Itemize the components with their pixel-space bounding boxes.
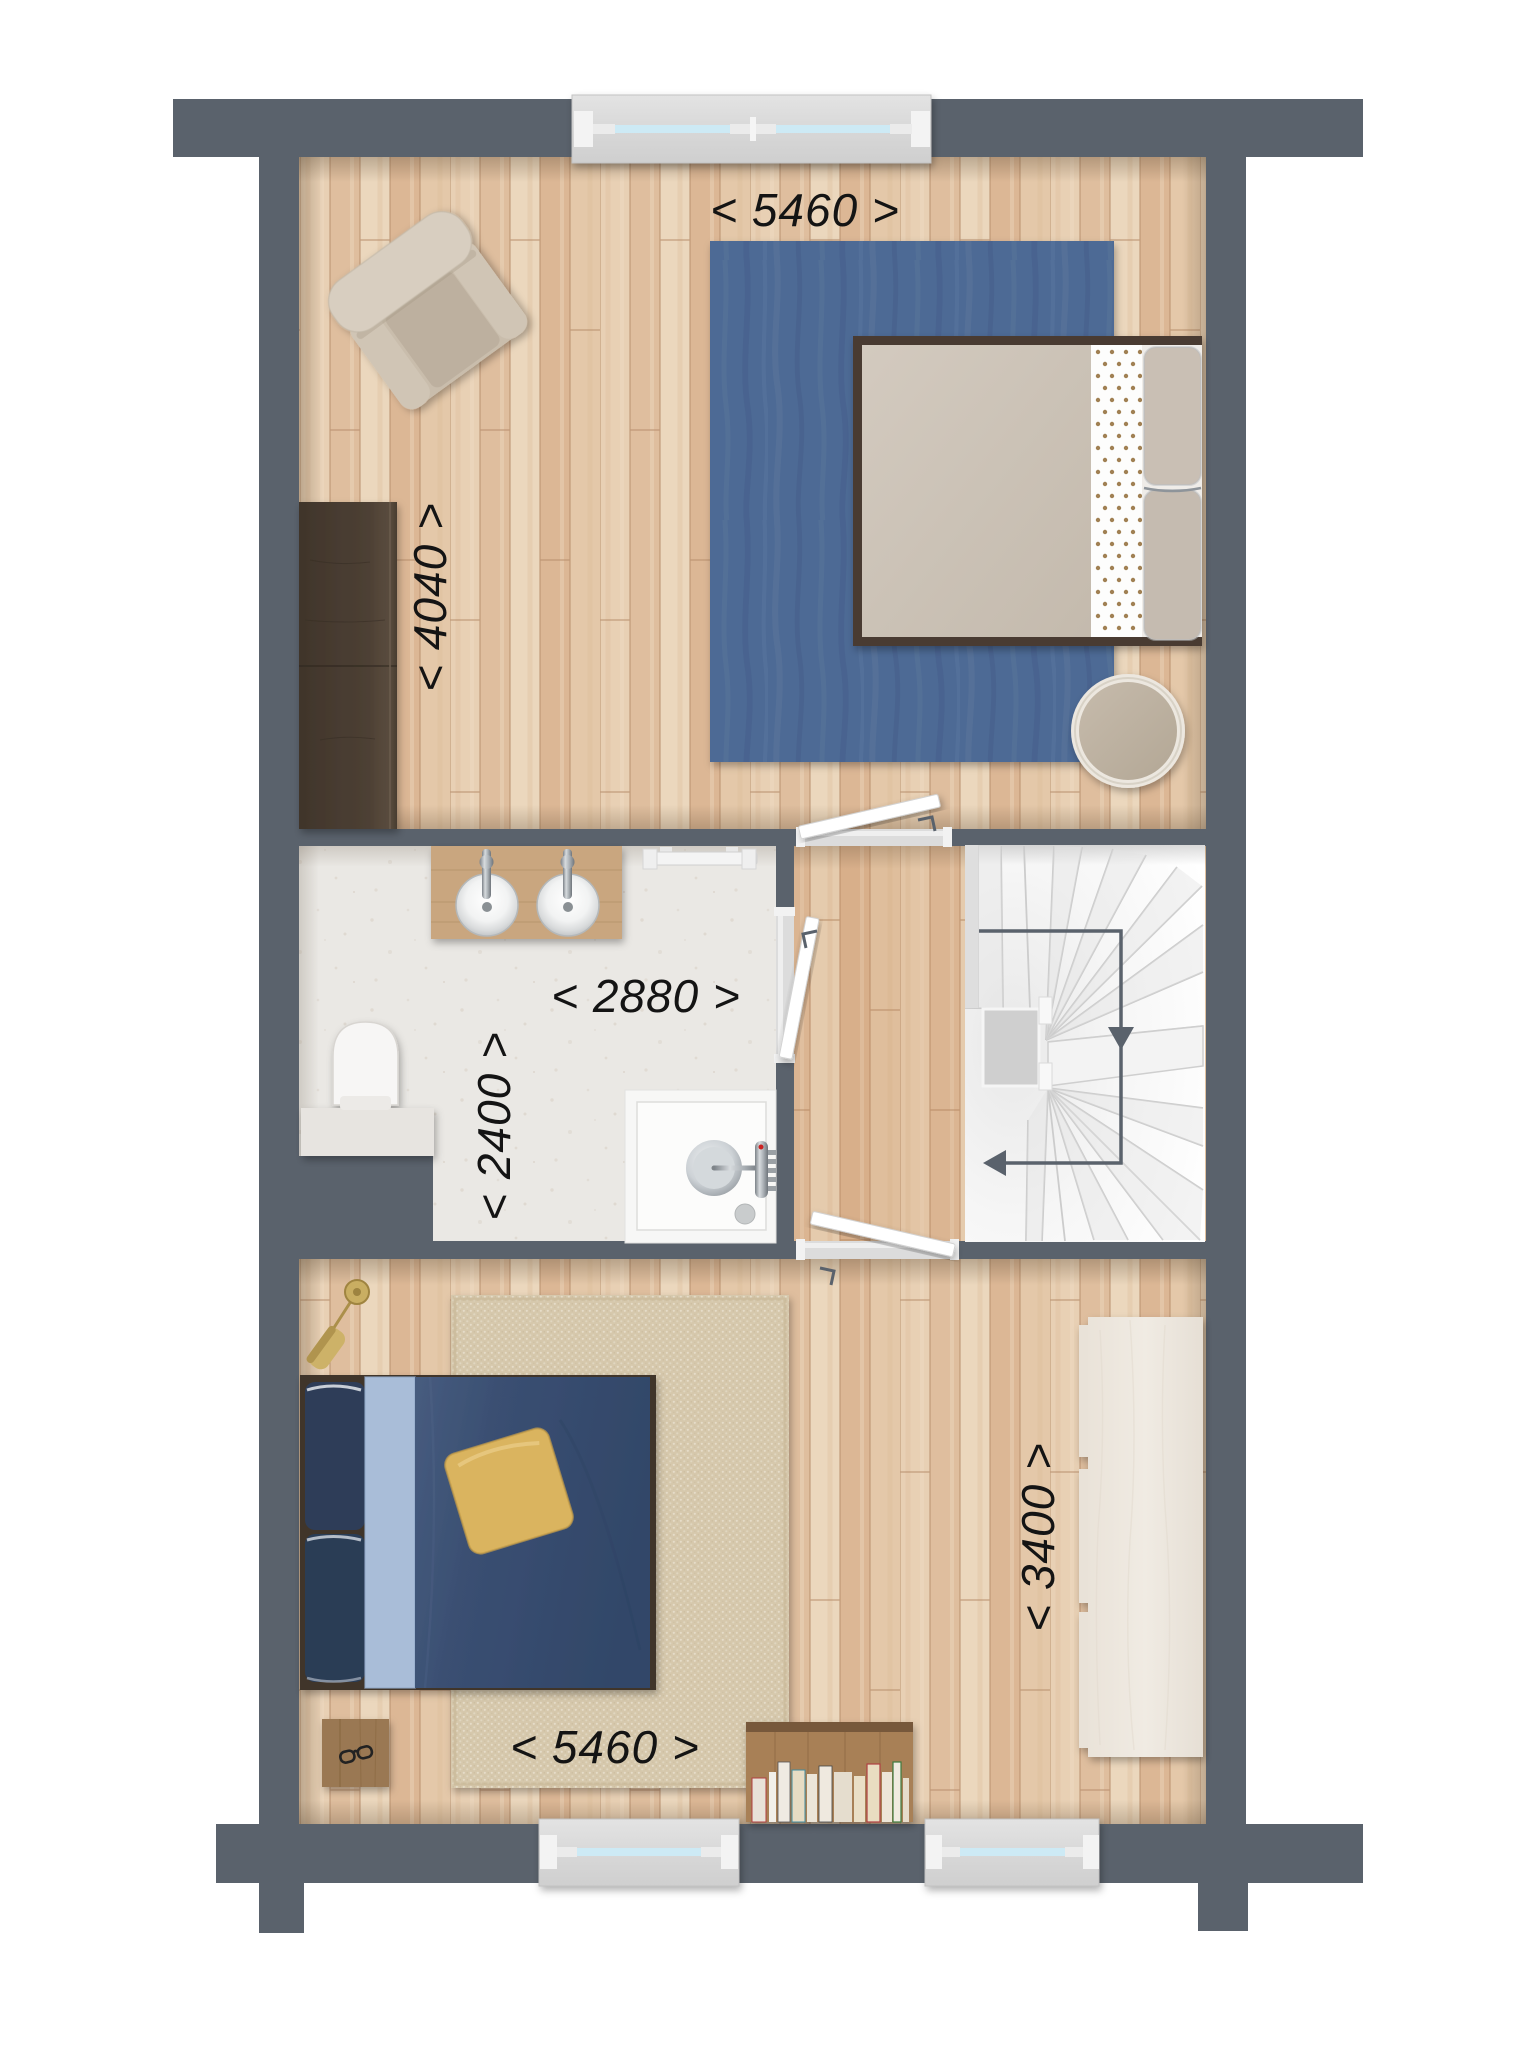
- svg-text:< 5460 >: < 5460 >: [710, 184, 900, 236]
- svg-text:< 2400 >: < 2400 >: [468, 1031, 520, 1221]
- svg-text:< 3400 >: < 3400 >: [1012, 1442, 1064, 1632]
- svg-text:< 4040 >: < 4040 >: [404, 502, 456, 692]
- svg-text:< 2880 >: < 2880 >: [551, 970, 741, 1022]
- svg-text:< 5460 >: < 5460 >: [510, 1721, 700, 1773]
